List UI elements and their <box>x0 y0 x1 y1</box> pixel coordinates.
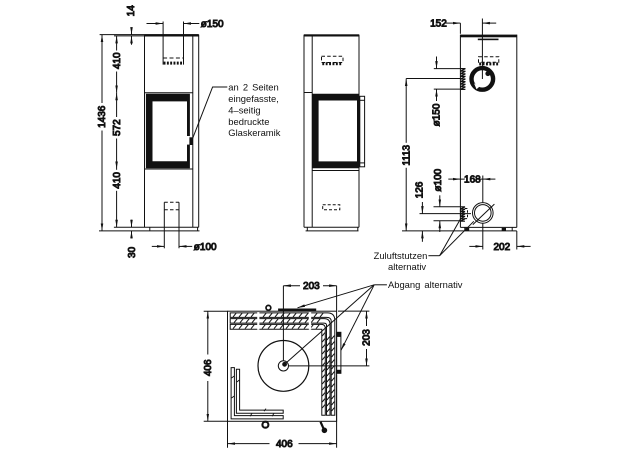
svg-text:1113: 1113 <box>402 144 413 165</box>
svg-text:406: 406 <box>203 359 214 376</box>
svg-text:410: 410 <box>112 172 123 189</box>
svg-text:alternativ: alternativ <box>388 261 426 272</box>
svg-text:ø150: ø150 <box>432 103 443 126</box>
svg-text:406: 406 <box>276 439 293 450</box>
svg-text:4–seitig: 4–seitig <box>228 105 260 116</box>
svg-text:eingefasste,: eingefasste, <box>228 93 279 104</box>
svg-text:Abgang alternativ: Abgang alternativ <box>388 279 463 290</box>
svg-text:202: 202 <box>493 242 510 253</box>
svg-text:ø150: ø150 <box>201 19 224 30</box>
svg-text:203: 203 <box>303 281 320 292</box>
svg-text:Zuluftstutzen: Zuluftstutzen <box>374 250 428 261</box>
svg-text:30: 30 <box>127 246 138 258</box>
svg-text:1436: 1436 <box>97 105 108 128</box>
svg-text:Glaskeramik: Glaskeramik <box>228 127 280 138</box>
svg-text:bedruckte: bedruckte <box>228 116 269 127</box>
svg-text:410: 410 <box>112 52 123 69</box>
svg-text:203: 203 <box>362 329 373 346</box>
svg-text:168: 168 <box>464 175 481 186</box>
svg-text:ø100: ø100 <box>433 168 444 191</box>
svg-text:ø100: ø100 <box>194 242 217 253</box>
svg-text:572: 572 <box>112 119 123 136</box>
svg-text:126: 126 <box>414 181 425 198</box>
svg-text:152: 152 <box>430 19 447 30</box>
svg-text:14: 14 <box>126 5 137 17</box>
svg-text:an 2 Seiten: an 2 Seiten <box>228 81 278 92</box>
